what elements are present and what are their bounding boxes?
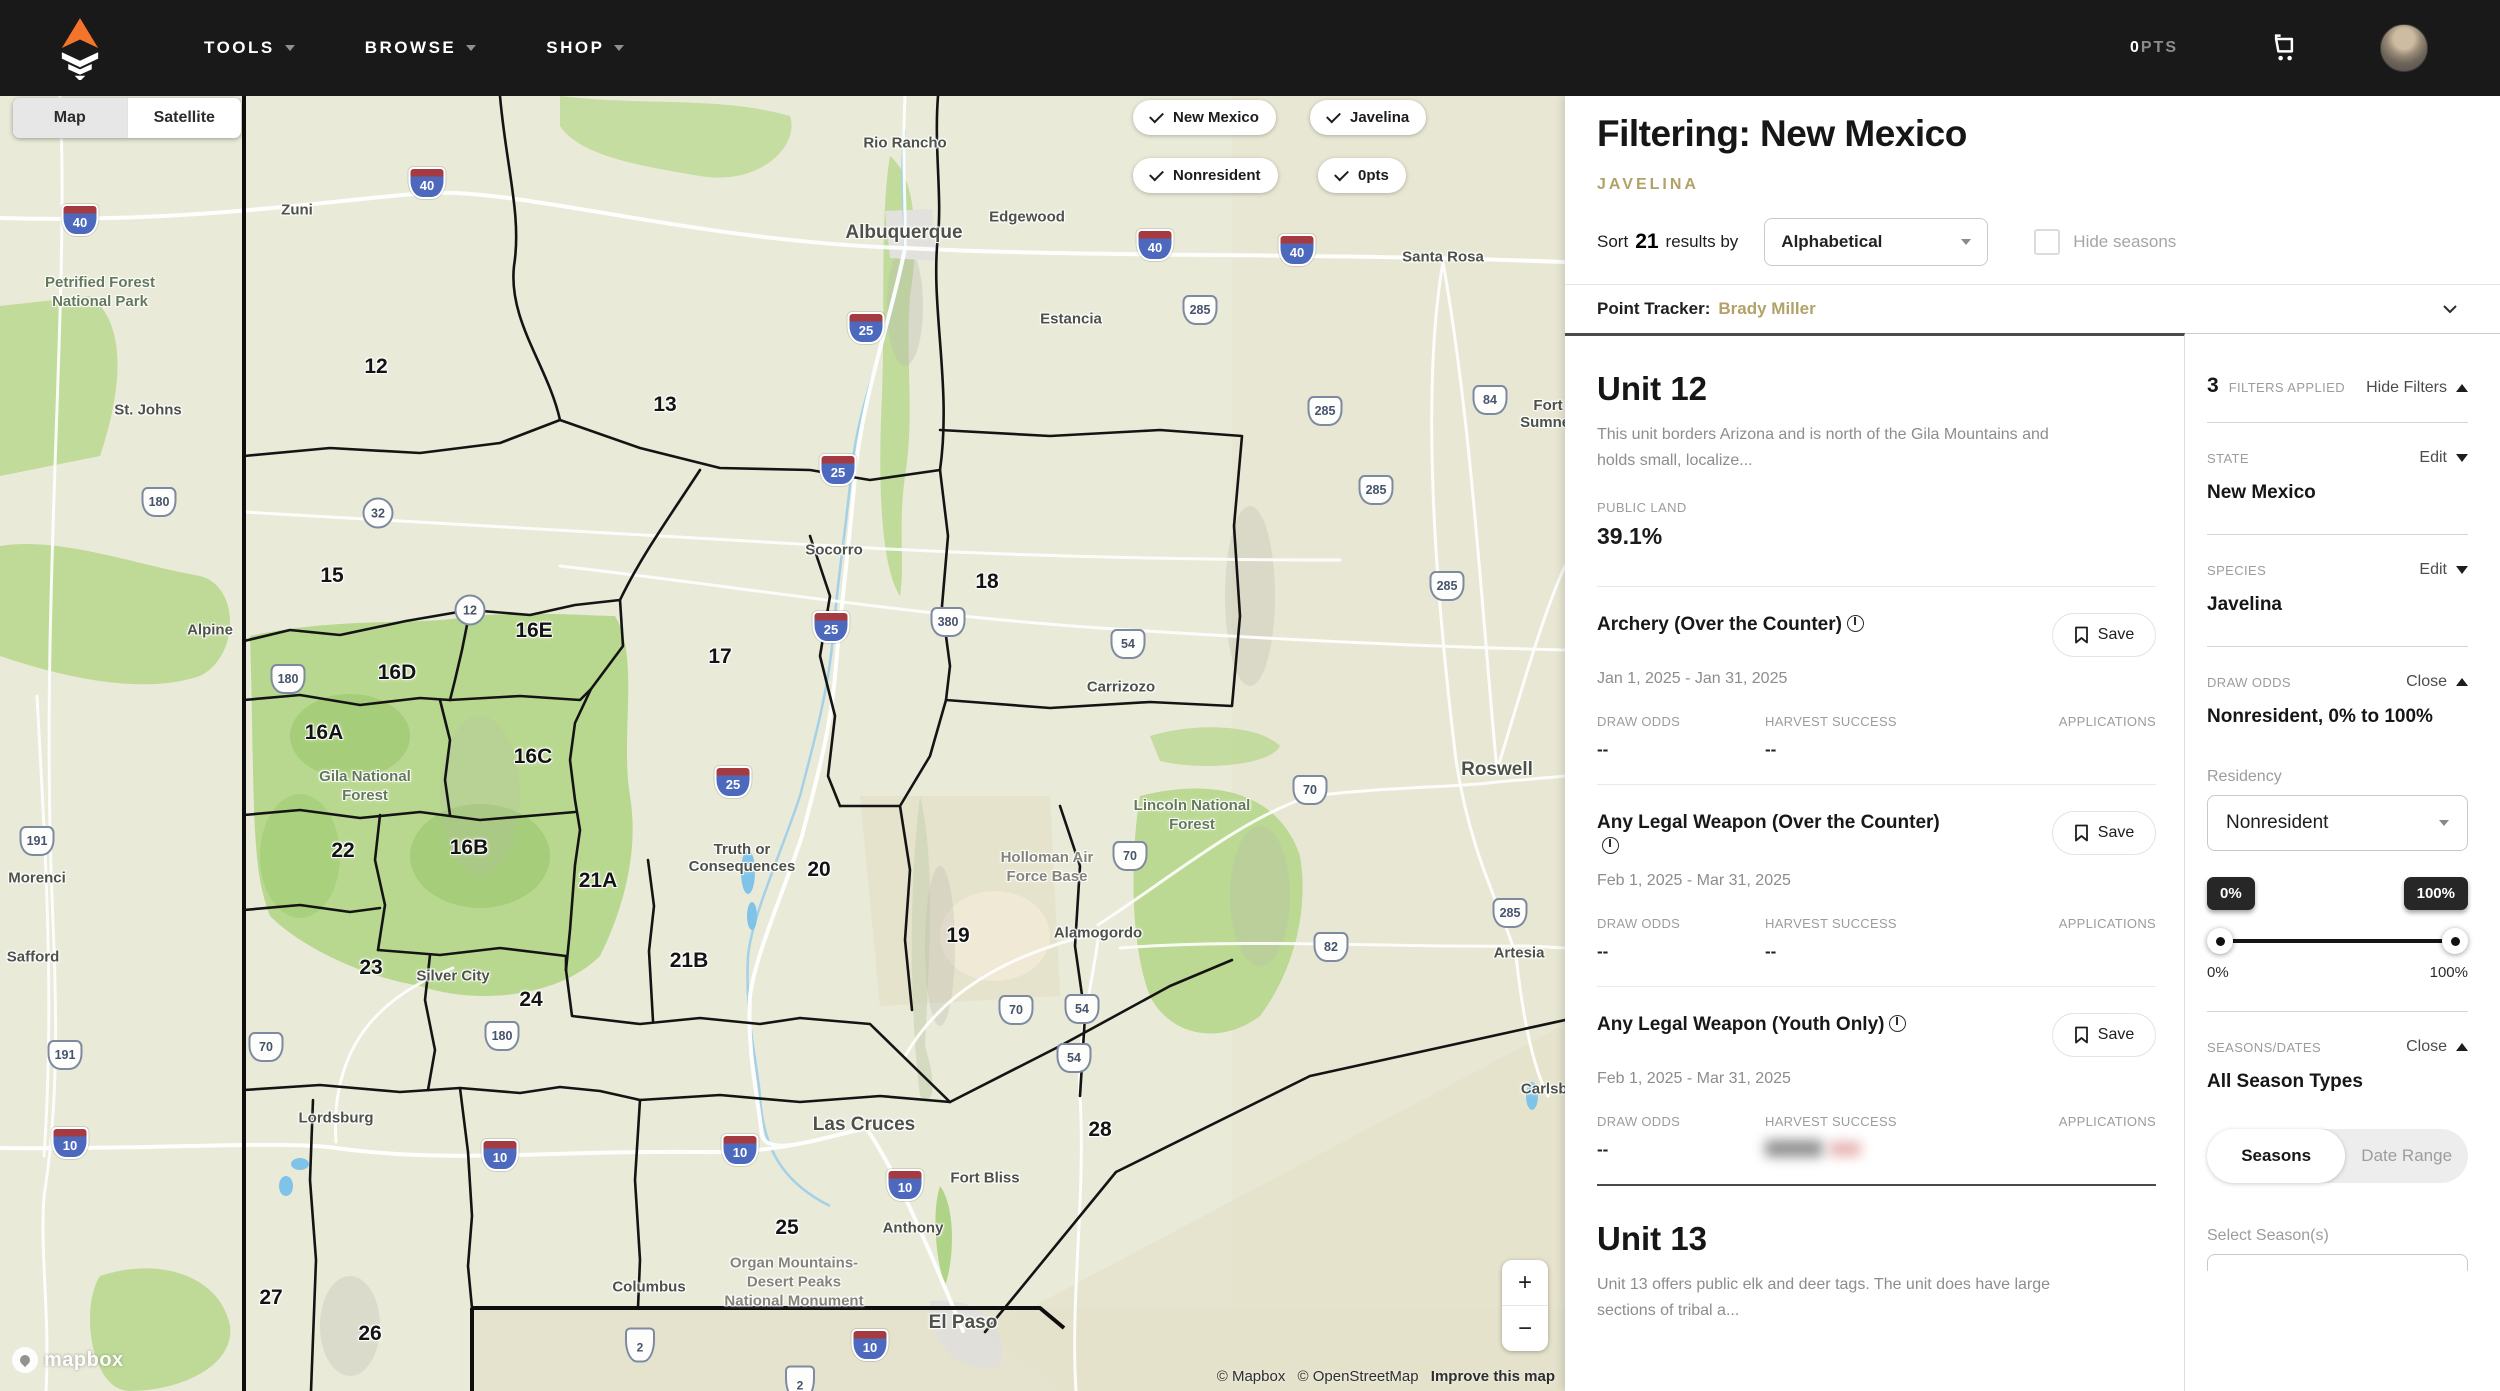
map-labels-layer: ZuniSt. JohnsAlpineRio RanchoAlbuquerque…: [0, 96, 1565, 1391]
highway-shield-icon: 10: [722, 1134, 759, 1166]
page-title: Filtering: New Mexico: [1597, 112, 2460, 156]
filter-chip-species[interactable]: Javelina: [1310, 100, 1426, 135]
tab-date-range[interactable]: Date Range: [2345, 1129, 2468, 1183]
nav-menu-browse[interactable]: BROWSE: [365, 38, 477, 58]
highway-shield-icon: 2: [625, 1328, 655, 1363]
season-row[interactable]: Any Legal Weapon (Over the Counter) Save…: [1597, 785, 2156, 987]
filters-count-label: FILTERS APPLIED: [2229, 380, 2345, 395]
draw-odds-value: --: [1597, 740, 1765, 760]
map-unit-label: 22: [331, 839, 354, 863]
points-badge[interactable]: 0PTS: [2130, 39, 2178, 57]
highway-shield-icon: 2: [785, 1366, 815, 1391]
season-title: Any Legal Weapon (Over the Counter): [1597, 811, 1942, 859]
select-seasons-label: Select Season(s): [2207, 1227, 2468, 1245]
highway-shield-icon: 285: [1359, 475, 1394, 505]
map-city-label: Zuni: [281, 202, 313, 219]
nav-right: 0PTS: [2130, 24, 2428, 72]
map-unit-label: 21A: [579, 869, 618, 893]
info-icon[interactable]: [1889, 1015, 1906, 1032]
filter-chip-points[interactable]: 0pts: [1318, 158, 1406, 193]
applications-header: APPLICATIONS: [1953, 714, 2156, 729]
map-unit-label: 16B: [450, 836, 489, 860]
draw-odds-value: --: [1597, 942, 1765, 962]
map-city-label: Roswell: [1461, 759, 1533, 781]
close-draw-odds-button[interactable]: Close: [2406, 673, 2468, 691]
max-odds-badge: 100%: [2404, 877, 2468, 910]
highway-shield-icon: 54: [1057, 1043, 1092, 1073]
highway-shield-icon: 40: [409, 167, 446, 199]
map-city-label: Carrizozo: [1087, 679, 1155, 696]
point-tracker-row[interactable]: Point Tracker: Brady Miller: [1565, 284, 2500, 333]
applications-value: [1953, 740, 2156, 760]
map-city-label: El Paso: [929, 1312, 998, 1334]
highway-shield-icon: 180: [271, 664, 306, 694]
unit-title: Unit 13: [1597, 1220, 2156, 1258]
highway-shield-icon: 82: [1314, 932, 1349, 962]
panel-body: Unit 12 This unit borders Arizona and is…: [1565, 333, 2500, 1391]
map-city-label: Safford: [7, 949, 60, 966]
filter-chip-residency[interactable]: Nonresident: [1133, 158, 1278, 193]
highway-shield-icon: 10: [482, 1139, 519, 1171]
map-city-label: Carlsbad: [1521, 1081, 1565, 1098]
attribution-mapbox-link[interactable]: © Mapbox: [1217, 1368, 1286, 1385]
info-icon[interactable]: [1847, 615, 1864, 632]
slider-labels: 0% 100%: [2207, 964, 2468, 981]
highway-shield-icon: 285: [1430, 571, 1465, 601]
map-city-label: Morenci: [8, 870, 66, 887]
filter-chip-label: 0pts: [1358, 167, 1389, 184]
map-unit-label: 28: [1088, 1118, 1111, 1142]
seasons-daterange-toggle: Seasons Date Range: [2207, 1129, 2468, 1183]
filters-header: 3 FILTERS APPLIED Hide Filters: [2207, 334, 2468, 422]
highway-shield-icon: 180: [485, 1021, 520, 1051]
sort-dropdown-value: Alphabetical: [1781, 232, 1882, 252]
map-city-label: St. Johns: [114, 402, 182, 419]
season-dates: Feb 1, 2025 - Mar 31, 2025: [1597, 872, 2156, 890]
slider-max-label: 100%: [2430, 964, 2468, 981]
check-icon: [1149, 108, 1164, 123]
edit-label: Edit: [2419, 449, 2447, 467]
season-title: Any Legal Weapon (Youth Only): [1597, 1013, 1906, 1037]
highway-shield-icon: 70: [249, 1032, 284, 1062]
map-unit-label: 18: [975, 570, 998, 594]
slider-track: [2220, 939, 2455, 943]
user-avatar[interactable]: [2380, 24, 2428, 72]
highway-shield-icon: 180: [142, 487, 177, 517]
season-dates: Jan 1, 2025 - Jan 31, 2025: [1597, 670, 2156, 688]
point-tracker-name: Brady Miller: [1718, 299, 1815, 319]
map-style-toggle: Map Satellite: [13, 98, 241, 138]
slider-min-label: 0%: [2207, 964, 2229, 981]
edit-species-button[interactable]: Edit: [2419, 561, 2468, 579]
harvest-success-header: HARVEST SUCCESS: [1765, 714, 1953, 729]
applications-header: APPLICATIONS: [1953, 916, 2156, 931]
sort-suffix: results by: [1666, 232, 1739, 252]
map-city-label: Socorro: [805, 542, 863, 559]
draw-odds-header: DRAW ODDS: [1597, 1114, 1765, 1129]
season-row[interactable]: Archery (Over the Counter) Save Jan 1, 2…: [1597, 587, 2156, 785]
highway-shield-icon: 285: [1308, 396, 1343, 426]
unit-description: Unit 13 offers public elk and deer tags.…: [1597, 1272, 2067, 1324]
residency-select[interactable]: Nonresident: [2207, 795, 2468, 851]
public-land-label: PUBLIC LAND: [1597, 500, 2156, 515]
highway-shield-icon: 10: [852, 1329, 889, 1361]
map-unit-label: 25: [775, 1216, 798, 1240]
triangle-down-icon: [2456, 454, 2468, 462]
map-city-label: Estancia: [1040, 311, 1102, 328]
map-unit-label: 12: [364, 355, 387, 379]
nav-menu-tools[interactable]: TOOLS: [204, 38, 295, 58]
highway-shield-icon: 70: [999, 995, 1034, 1025]
map-zoom-controls: + −: [1502, 1260, 1548, 1351]
save-button[interactable]: Save: [2052, 613, 2156, 657]
highway-shield-icon: 40: [1137, 229, 1174, 261]
hide-seasons-label: Hide seasons: [2073, 232, 2176, 252]
species-filter-label: SPECIES: [2207, 563, 2266, 578]
highway-shield-icon: 25: [820, 454, 857, 486]
triangle-up-icon: [2456, 1043, 2468, 1051]
filter-section-draw-odds: DRAW ODDS Close Nonresident, 0% to 100% …: [2207, 646, 2468, 1011]
applications-value: [1953, 942, 2156, 962]
check-icon: [1326, 108, 1341, 123]
zoom-in-button[interactable]: +: [1502, 1260, 1548, 1305]
unit-card[interactable]: Unit 12 This unit borders Arizona and is…: [1597, 336, 2156, 587]
map-unit-label: 16D: [378, 661, 417, 685]
cart-icon[interactable]: [2266, 30, 2302, 66]
map-city-label: Truth or Consequences: [689, 841, 796, 875]
map-unit-label: 13: [653, 393, 676, 417]
app-root: TOOLS BROWSE SHOP 0PTS: [0, 0, 2500, 1391]
tab-seasons[interactable]: Seasons: [2207, 1129, 2345, 1183]
highway-shield-icon: 32: [363, 498, 394, 529]
hide-seasons-checkbox[interactable]: [2034, 229, 2060, 255]
slider-handle-min[interactable]: [2207, 928, 2233, 954]
map-city-label: Rio Rancho: [863, 135, 946, 152]
highway-shield-icon: 40: [62, 204, 99, 236]
unit-card[interactable]: Unit 13 Unit 13 offers public elk and de…: [1597, 1186, 2156, 1324]
chevron-down-icon: [614, 45, 624, 51]
map-city-label: Albuquerque: [845, 222, 962, 244]
harvest-success-value: --: [1765, 942, 1953, 962]
map-area-label: Petrified Forest National Park: [45, 273, 155, 311]
close-label: Close: [2406, 1038, 2447, 1056]
draw-odds-header: DRAW ODDS: [1597, 916, 1765, 931]
highway-shield-icon: 70: [1113, 841, 1148, 871]
highway-shield-icon: 191: [20, 826, 55, 856]
filter-chip-label: New Mexico: [1173, 109, 1259, 126]
map-city-label: Lordsburg: [299, 1110, 374, 1127]
sort-prefix: Sort: [1597, 232, 1628, 252]
chevron-down-icon: [1961, 239, 1971, 245]
residency-label: Residency: [2207, 768, 2468, 786]
top-nav: TOOLS BROWSE SHOP 0PTS: [0, 0, 2500, 96]
save-button-label: Save: [2098, 824, 2134, 842]
map-city-label: Las Cruces: [813, 1114, 915, 1136]
map-city-label: Fort Bliss: [950, 1170, 1019, 1187]
draw-odds-filter-label: DRAW ODDS: [2207, 675, 2291, 690]
highway-shield-icon: 285: [1493, 898, 1528, 928]
nav-menu-tools-label: TOOLS: [204, 38, 275, 58]
bookmark-icon: [2074, 824, 2089, 842]
brand-logo-icon[interactable]: [52, 16, 108, 80]
results-list: Unit 12 This unit borders Arizona and is…: [1565, 333, 2185, 1391]
results-count: 21: [1635, 230, 1658, 254]
save-button[interactable]: Save: [2052, 811, 2156, 855]
map-area-label: Holloman Air Force Base: [1001, 848, 1094, 886]
map-area-label: Organ Mountains- Desert Peaks National M…: [724, 1254, 863, 1311]
map-unit-label: 21B: [670, 949, 709, 973]
map-city-label: Edgewood: [989, 209, 1065, 226]
nav-menu-browse-label: BROWSE: [365, 38, 457, 58]
info-icon[interactable]: [1602, 837, 1619, 854]
point-tracker-label: Point Tracker:: [1597, 299, 1710, 319]
highway-shield-icon: 10: [887, 1169, 924, 1201]
slider-handle-max[interactable]: [2442, 928, 2468, 954]
select-seasons-input[interactable]: [2207, 1254, 2468, 1271]
highway-shield-icon: 54: [1111, 629, 1146, 659]
state-filter-value: New Mexico: [2207, 482, 2468, 504]
map-city-label: Anthony: [883, 1220, 944, 1237]
map-unit-label: 16E: [515, 619, 552, 643]
nav-menu-shop[interactable]: SHOP: [546, 38, 624, 58]
attribution-improve-link[interactable]: Improve this map: [1431, 1368, 1555, 1385]
map-unit-label: 24: [519, 988, 542, 1012]
filter-section-state: STATE Edit New Mexico: [2207, 422, 2468, 534]
map-unit-label: 19: [946, 924, 969, 948]
highway-shield-icon: 25: [848, 312, 885, 344]
map-unit-label: 15: [320, 564, 343, 588]
draw-odds-value: --: [1597, 1140, 1765, 1160]
map-unit-label: 26: [358, 1322, 381, 1346]
map-unit-label: 17: [708, 645, 731, 669]
results-panel: Filtering: New Mexico JAVELINA Sort 21 r…: [1565, 96, 2500, 1391]
bookmark-icon: [2074, 1026, 2089, 1044]
save-button-label: Save: [2098, 626, 2134, 644]
attribution-osm-link[interactable]: © OpenStreetMap: [1298, 1368, 1419, 1385]
map-city-label: Artesia: [1494, 945, 1545, 962]
highway-shield-icon: 10: [52, 1127, 89, 1159]
points-label: PTS: [2141, 39, 2178, 56]
triangle-up-icon: [2456, 678, 2468, 686]
triangle-down-icon: [2456, 566, 2468, 574]
min-odds-badge: 0%: [2207, 877, 2255, 910]
harvest-success-header: HARVEST SUCCESS: [1765, 916, 1953, 931]
public-land-value: 39.1%: [1597, 523, 2156, 587]
filter-section-seasons: SEASONS/DATES Close All Season Types Sea…: [2207, 1011, 2468, 1301]
close-seasons-button[interactable]: Close: [2406, 1038, 2468, 1056]
nav-menu-shop-label: SHOP: [546, 38, 604, 58]
hide-filters-button[interactable]: Hide Filters: [2366, 379, 2468, 397]
seasons-filter-value: All Season Types: [2207, 1071, 2468, 1093]
check-icon: [1149, 166, 1164, 181]
filter-section-species: SPECIES Edit Javelina: [2207, 534, 2468, 646]
species-filter-value: Javelina: [2207, 594, 2468, 616]
hide-filters-label: Hide Filters: [2366, 379, 2447, 397]
applications-header: APPLICATIONS: [1953, 1114, 2156, 1129]
map-city-label: Santa Rosa: [1402, 249, 1484, 266]
odds-badges: 0% 100%: [2207, 877, 2468, 910]
triangle-up-icon: [2456, 384, 2468, 392]
chevron-down-icon: [2439, 820, 2449, 826]
highway-shield-icon: 25: [813, 611, 850, 643]
map-area-label: Gila National Forest: [319, 767, 411, 805]
mapbox-logo-text: mapbox: [44, 1349, 124, 1372]
draw-odds-header: DRAW ODDS: [1597, 714, 1765, 729]
harvest-success-value: --: [1765, 740, 1953, 760]
map-unit-label: 23: [359, 956, 382, 980]
edit-label: Edit: [2419, 561, 2447, 579]
highway-shield-icon: 70: [1293, 775, 1328, 805]
map-city-label: Fort Sumner: [1520, 397, 1565, 431]
map-unit-label: 20: [807, 858, 830, 882]
nav-menus: TOOLS BROWSE SHOP: [204, 38, 624, 58]
season-stats: DRAW ODDS HARVEST SUCCESS APPLICATIONS -…: [1597, 1114, 2156, 1160]
highway-shield-icon: 191: [48, 1040, 83, 1070]
mapbox-logo[interactable]: mapbox: [12, 1347, 124, 1373]
highway-shield-icon: 12: [455, 595, 486, 626]
map-city-label: Columbus: [612, 1279, 685, 1296]
map-unit-label: 16A: [305, 721, 344, 745]
highway-shield-icon: 54: [1065, 994, 1100, 1024]
mapbox-logo-icon: [12, 1347, 38, 1373]
residency-select-value: Nonresident: [2226, 812, 2328, 834]
harvest-success-header: HARVEST SUCCESS: [1765, 1114, 1953, 1129]
map-attribution: © Mapbox © OpenStreetMap Improve this ma…: [1209, 1368, 1555, 1385]
draw-odds-filter-value: Nonresident, 0% to 100%: [2207, 706, 2468, 728]
state-filter-label: STATE: [2207, 451, 2249, 466]
unit-title: Unit 12: [1597, 370, 2156, 408]
harvest-success-obscured-value: [1765, 1140, 1953, 1160]
map-city-label: Alpine: [187, 622, 233, 639]
close-label: Close: [2406, 673, 2447, 691]
edit-state-button[interactable]: Edit: [2419, 449, 2468, 467]
chevron-down-icon[interactable]: [2440, 299, 2460, 319]
points-value: 0: [2130, 39, 2141, 56]
map-area-label: Lincoln National Forest: [1134, 796, 1251, 834]
highway-shield-icon: 380: [931, 607, 966, 637]
season-dates: Feb 1, 2025 - Mar 31, 2025: [1597, 1070, 2156, 1088]
season-title: Archery (Over the Counter): [1597, 613, 1864, 637]
map-unit-label: 16C: [514, 745, 553, 769]
map-style-satellite-button[interactable]: Satellite: [127, 98, 242, 138]
map-city-label: Alamogordo: [1054, 925, 1142, 942]
map-city-label: Silver City: [416, 968, 489, 985]
map-style-map-button[interactable]: Map: [13, 98, 127, 138]
filter-chip-state[interactable]: New Mexico: [1133, 100, 1276, 135]
filter-chip-label: Javelina: [1350, 109, 1409, 126]
panel-header: Filtering: New Mexico JAVELINA Sort 21 r…: [1565, 96, 2500, 266]
filter-chip-label: Nonresident: [1173, 167, 1261, 184]
highway-shield-icon: 40: [1279, 234, 1316, 266]
highway-shield-icon: 25: [715, 766, 752, 798]
season-stats: DRAW ODDS HARVEST SUCCESS APPLICATIONS -…: [1597, 916, 2156, 962]
filters-panel: 3 FILTERS APPLIED Hide Filters STATE Edi…: [2185, 333, 2500, 1391]
species-tag: JAVELINA: [1597, 176, 2460, 194]
odds-range-slider[interactable]: [2207, 928, 2468, 954]
map-canvas[interactable]: ZuniSt. JohnsAlpineRio RanchoAlbuquerque…: [0, 96, 1565, 1391]
save-button[interactable]: Save: [2052, 1013, 2156, 1057]
seasons-filter-label: SEASONS/DATES: [2207, 1040, 2321, 1055]
highway-shield-icon: 285: [1183, 295, 1218, 325]
sort-row: Sort 21 results by Alphabetical Hide sea…: [1597, 218, 2460, 266]
chevron-down-icon: [466, 45, 476, 51]
chevron-down-icon: [285, 45, 295, 51]
filters-count: 3: [2207, 374, 2219, 398]
bookmark-icon: [2074, 626, 2089, 644]
check-icon: [1334, 166, 1349, 181]
season-row[interactable]: Any Legal Weapon (Youth Only) Save Feb 1…: [1597, 987, 2156, 1186]
map-unit-label: 27: [259, 1286, 282, 1310]
season-stats: DRAW ODDS HARVEST SUCCESS APPLICATIONS -…: [1597, 714, 2156, 760]
save-button-label: Save: [2098, 1026, 2134, 1044]
hide-seasons-toggle[interactable]: Hide seasons: [2034, 229, 2176, 255]
applications-value: [1953, 1140, 2156, 1160]
sort-dropdown[interactable]: Alphabetical: [1764, 218, 1988, 266]
zoom-out-button[interactable]: −: [1502, 1305, 1548, 1351]
unit-description: This unit borders Arizona and is north o…: [1597, 422, 2067, 474]
highway-shield-icon: 84: [1473, 385, 1508, 415]
